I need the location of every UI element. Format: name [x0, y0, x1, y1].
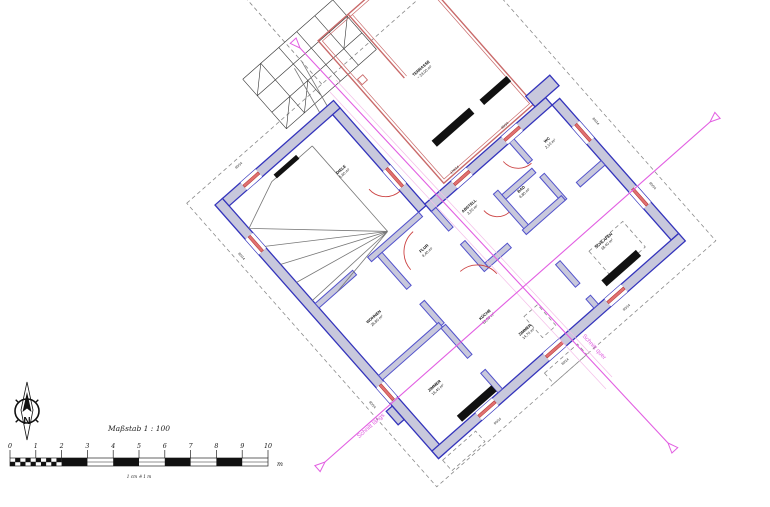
scale-comb-cell [15, 458, 20, 462]
scale-comb-cell [20, 462, 25, 466]
scale-subcaption: 1 cm ≙ 1 m [127, 474, 151, 479]
dim-label: 80/14 [368, 400, 377, 409]
scale-number: 3 [85, 443, 89, 450]
dim-label: 80/14 [648, 181, 657, 190]
scale-number: 8 [214, 443, 218, 450]
scale-comb-cell [46, 458, 51, 462]
terrace-marker-square [358, 75, 368, 85]
north-letter: N [23, 416, 30, 427]
scale-number: 0 [8, 443, 12, 450]
scale-number: 2 [59, 443, 64, 450]
scale-number: 4 [110, 443, 115, 450]
scale-comb-cell [10, 462, 15, 466]
scale-number: 7 [189, 443, 193, 450]
scale-number: 10 [264, 443, 272, 450]
north-arrow: N [15, 382, 39, 440]
scale-comb-cell [25, 458, 30, 462]
scale-bar: Maßstab 1 : 100 012345678910 m 1 cm ≙ 1 … [8, 424, 283, 479]
dimension-labels: 80/1480/1480/1480/1480/1480/1480/1480/14… [192, 0, 704, 479]
section-label-laengs: Schnitt längs [356, 413, 386, 440]
dim-label: 80/14 [622, 303, 631, 312]
scale-title: Maßstab 1 : 100 [107, 424, 170, 433]
scale-comb-cell [36, 458, 41, 462]
scale-comb-cell [31, 462, 36, 466]
dim-label: 80/14 [234, 161, 243, 170]
section-line-quer [300, 48, 668, 443]
scale-comb-cell [41, 462, 46, 466]
door-swings [353, 97, 572, 314]
outer-walls [209, 0, 691, 464]
scale-number: 6 [163, 443, 167, 450]
floorplan-drawing: TERRASSE~ 23,00 m²DIELE5,60 m²WOHNEN26,8… [0, 0, 770, 507]
scale-number: 9 [240, 443, 244, 450]
building-plan: TERRASSE~ 23,00 m²DIELE5,60 m²WOHNEN26,8… [107, 0, 715, 487]
scale-number: 5 [137, 443, 141, 450]
dim-label: 80/14 [493, 417, 502, 426]
dim-label: 80/14 [237, 252, 246, 261]
scale-bar-ticks: 012345678910 [8, 443, 272, 458]
scale-unit: m [277, 461, 283, 468]
scale-number: 1 [34, 443, 38, 450]
scale-comb-cell [51, 462, 56, 466]
terrace-outline [318, 0, 534, 183]
floorplan-sheet: TERRASSE~ 23,00 m²DIELE5,60 m²WOHNEN26,8… [0, 0, 770, 507]
scale-comb-cell [56, 458, 61, 462]
section-line-laengs [325, 122, 710, 462]
dim-label: 80/14 [591, 117, 600, 126]
dim-label: 80/14 [561, 357, 570, 366]
